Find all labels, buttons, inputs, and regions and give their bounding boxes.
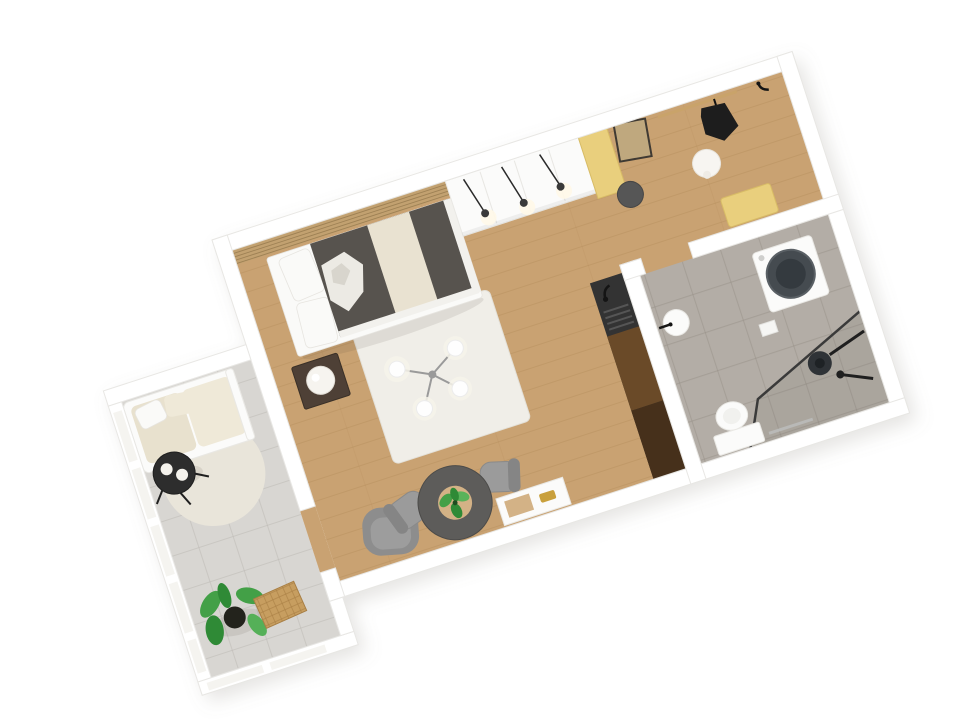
floor-plan-canvas xyxy=(0,0,967,727)
chair-right-back xyxy=(508,458,521,492)
leaning-mirror xyxy=(614,119,652,162)
mirror-glass xyxy=(614,119,652,162)
render-stage xyxy=(0,0,967,727)
